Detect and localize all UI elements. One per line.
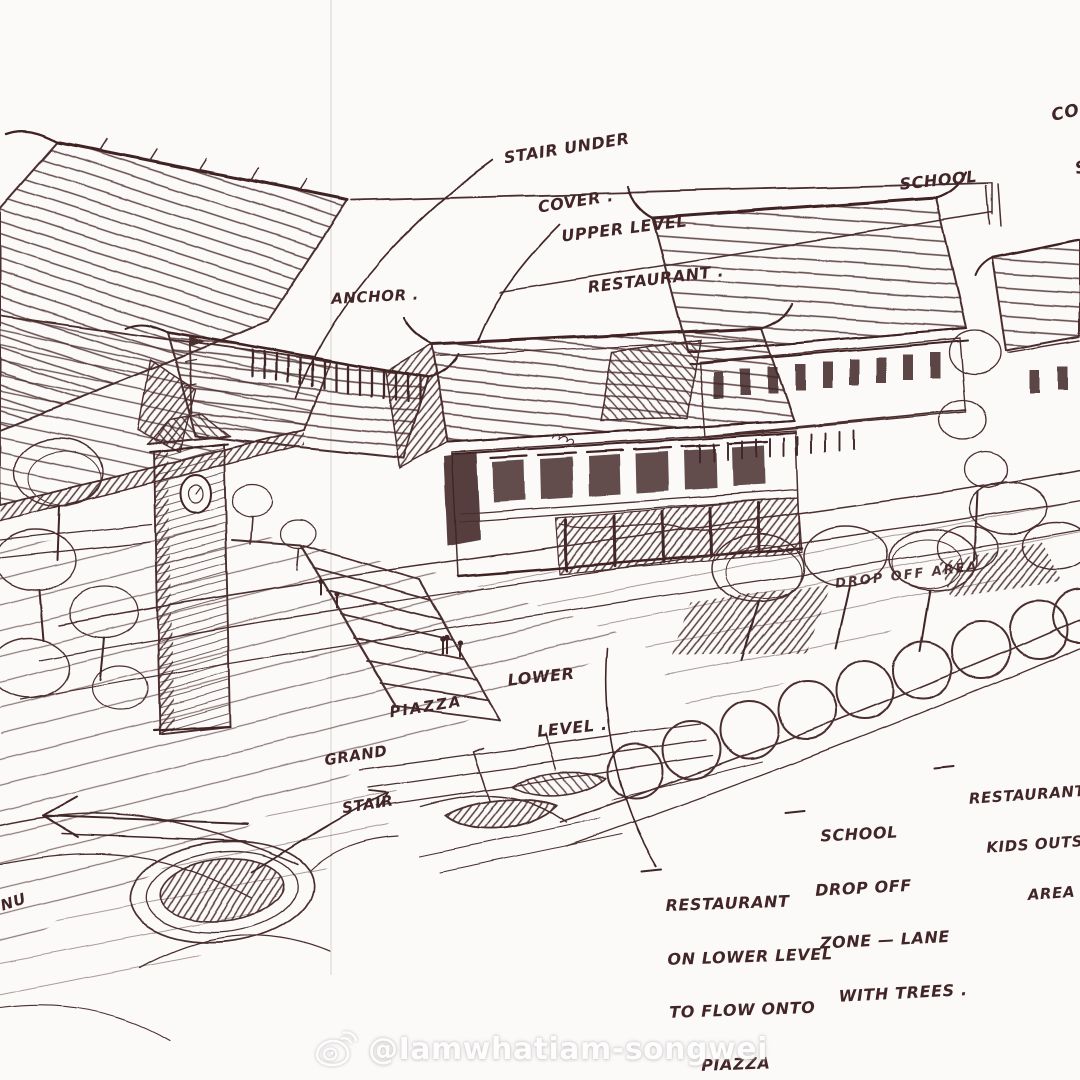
annotation-upper-level-restaurant: UPPER LEVEL RESTAURANT . (556, 173, 727, 317)
anchor-building-roofs (0, 131, 458, 558)
weibo-icon (312, 1030, 358, 1068)
sketch-page: STAIR UNDER COVER . UPPER LEVEL RESTAURA… (0, 0, 1080, 1080)
annotation-anchor: ANCHOR . (329, 252, 420, 324)
annotation-piazza: PIAZZA (383, 659, 466, 737)
watermark: @Iamwhatiam-songwei (312, 1030, 768, 1068)
annotation-lower-level: LOWER LEVEL . (503, 626, 610, 761)
watermark-handle: @Iamwhatiam-songwei (368, 1032, 768, 1067)
annotation-restaurant-kids-outside: RESTAURANT KIDS OUTSIDE AREA (966, 747, 1080, 924)
annotation-school: SCHOOL (895, 132, 980, 211)
